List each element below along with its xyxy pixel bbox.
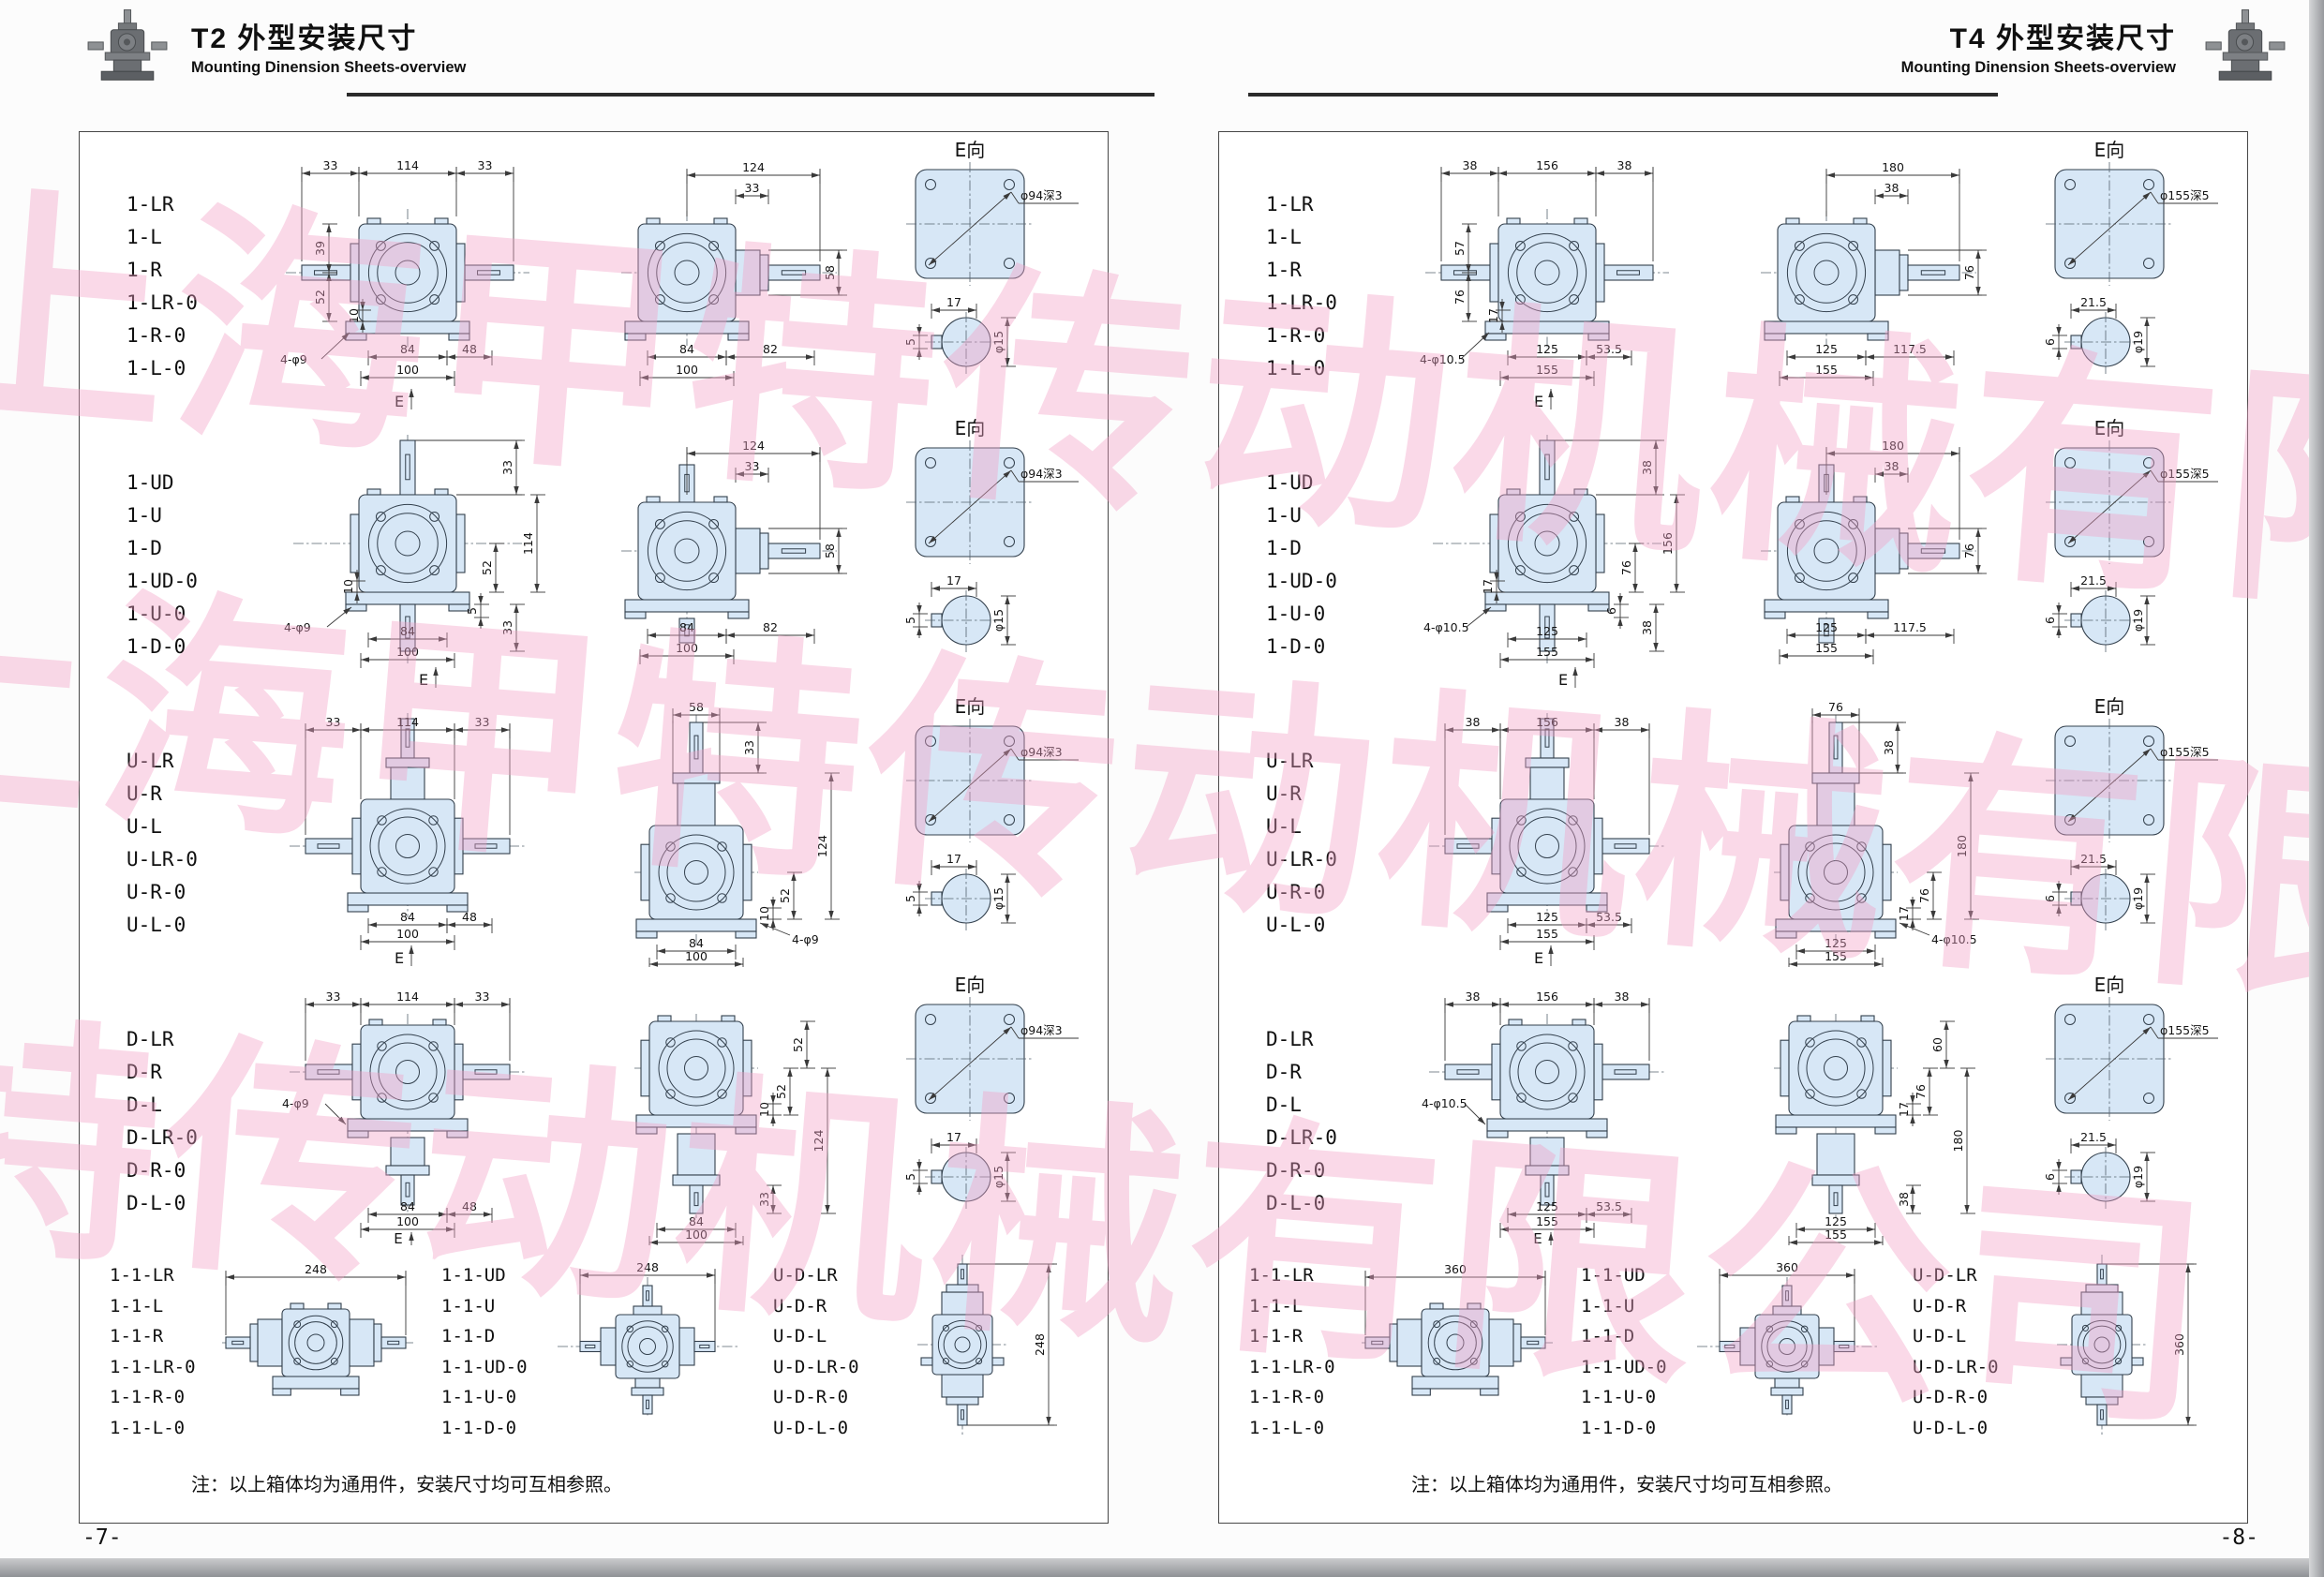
dim-text: 114	[396, 158, 419, 172]
e-view-title: E向	[955, 417, 986, 439]
dim-text: 5	[903, 1173, 917, 1181]
model-label: U-D-LR-0	[773, 1352, 882, 1383]
model-label: 1-1-L	[1249, 1291, 1358, 1322]
dim-text: 53.5	[1596, 342, 1622, 356]
dim-text: 84	[400, 1199, 415, 1213]
e-view-title: E向	[2094, 417, 2125, 439]
drawing-row: U-LRU-RU-LU-LR-0U-R-0U-L-0381563812553.5…	[1225, 689, 2229, 967]
view-side: 12433588482100	[556, 410, 865, 689]
model-label: 1-1-R	[110, 1321, 218, 1352]
model-label: D-L	[127, 1089, 246, 1122]
e-view: E向φ94深3175φ15	[865, 689, 1090, 967]
dim-text: 60	[1930, 1037, 1944, 1052]
drawing-row: 1-UD1-U1-D1-UD-01-U-01-D-033114523351084…	[85, 410, 1090, 689]
e-view: E向φ155深521.56φ19	[2004, 689, 2229, 967]
model-label: 1-U-0	[1266, 598, 1386, 631]
model-label: 1-UD	[1266, 467, 1386, 499]
dim-text: 76	[1828, 700, 1843, 714]
assembly-drawing: 248	[882, 1245, 1080, 1447]
model-label: U-D-LR-0	[1913, 1352, 2021, 1383]
e-direction-label: E	[395, 949, 404, 967]
dim-text: 125	[1536, 624, 1558, 638]
model-label: U-D-R-0	[773, 1382, 882, 1413]
model-label: 1-R	[1266, 254, 1386, 287]
dim-text: 100	[396, 363, 419, 377]
dim-text: 100	[676, 641, 698, 655]
dim-text: 48	[462, 1199, 477, 1213]
drawing-row: D-LRD-RD-LD-LR-0D-R-0D-L-033114334-φ9844…	[85, 967, 1090, 1245]
dim-text: 38	[1617, 158, 1632, 172]
dim-text: 48	[462, 910, 477, 924]
assembly-group: U-D-LRU-D-RU-D-LU-D-LR-0U-D-R-0U-D-L-036…	[1888, 1245, 2220, 1447]
model-label: D-R	[127, 1056, 246, 1089]
model-label: 1-1-LR-0	[110, 1352, 218, 1383]
model-label: U-D-R-0	[1913, 1382, 2021, 1413]
scan-edge-bottom	[0, 1558, 2324, 1577]
dim-text: φ15	[991, 1166, 1006, 1188]
dim-text: 100	[685, 949, 708, 963]
model-label: 1-1-D	[1581, 1321, 1690, 1352]
model-label: D-L-0	[1266, 1187, 1386, 1220]
dim-text: 52	[774, 1084, 788, 1099]
dim-text: 58	[689, 700, 704, 714]
view-side: 12433588482100	[556, 132, 865, 410]
dim-text: 125	[1815, 620, 1838, 634]
model-label: 1-UD-0	[127, 565, 246, 598]
dim-text: 10	[757, 906, 771, 921]
bore-note: φ94深3	[1020, 745, 1063, 759]
dim-text: 21.5	[2080, 1130, 2107, 1144]
dim-text: 6	[2043, 895, 2057, 902]
model-label: 1-D	[1266, 532, 1386, 565]
model-label: 1-L-0	[1266, 352, 1386, 385]
model-label: D-R-0	[127, 1154, 246, 1187]
dim-text: 53.5	[1596, 910, 1622, 924]
dim-text: 33	[745, 181, 760, 195]
dim-text: φ15	[991, 887, 1006, 910]
dim-text: 52	[791, 1037, 805, 1052]
model-label: 1-LR	[1266, 188, 1386, 221]
model-label-column: U-LRU-RU-LU-LR-0U-R-0U-L-0	[85, 689, 246, 967]
model-label: U-LR	[1266, 745, 1386, 778]
model-label-column: 1-UD1-U1-D1-UD-01-U-01-D-0	[85, 410, 246, 689]
dim-text: 125	[1536, 910, 1558, 924]
dim-text: 84	[689, 936, 704, 950]
dim-text: 360	[1444, 1262, 1467, 1276]
model-label: 1-1-U-0	[441, 1382, 550, 1413]
assembly-row: 1-1-LR1-1-L1-1-R1-1-LR-01-1-R-01-1-L-024…	[85, 1245, 1080, 1447]
view-front: 3815676386171251554-φ10.5E	[1386, 410, 1695, 689]
model-label-column: 1-LR1-L1-R1-LR-01-R-01-L-0	[85, 132, 246, 410]
dim-text: 38	[1640, 620, 1654, 635]
dim-text: 100	[676, 363, 698, 377]
dim-text: 38	[1466, 989, 1481, 1004]
assembly-drawing: 248	[550, 1245, 749, 1447]
page-subtitle: Mounting Dinension Sheets-overview	[191, 59, 466, 77]
dim-text: 114	[521, 532, 535, 555]
e-direction-label: E	[395, 393, 404, 410]
e-view-title: E向	[2094, 139, 2125, 161]
dim-text: 180	[1882, 439, 1904, 453]
model-label: 1-1-LR	[1249, 1260, 1358, 1291]
model-label: U-R-0	[127, 876, 246, 909]
dim-text: 6	[2043, 1173, 2057, 1181]
model-label: 1-1-U-0	[1581, 1382, 1690, 1413]
dim-text: 114	[396, 989, 419, 1004]
assembly-group: 1-1-LR1-1-L1-1-R1-1-LR-01-1-R-01-1-L-036…	[1225, 1245, 1557, 1447]
dim-text: 39	[313, 241, 327, 256]
gearbox-photo-icon	[82, 7, 172, 92]
view-front: 33114338448100E	[246, 689, 556, 967]
assembly-row: 1-1-LR1-1-L1-1-R1-1-LR-01-1-R-01-1-L-036…	[1225, 1245, 2220, 1447]
model-label: U-L-0	[127, 909, 246, 942]
model-label: U-L-0	[1266, 909, 1386, 942]
dim-text: 82	[763, 342, 778, 356]
dim-text: 82	[763, 620, 778, 634]
hole-note: 4-φ9	[282, 1096, 309, 1110]
e-direction-label: E	[1558, 671, 1568, 689]
footnote: 注：以上箱体均为通用件，安装尺寸均可互相参照。	[191, 1469, 622, 1496]
dim-text: 10	[347, 308, 361, 323]
dim-text: 84	[679, 620, 694, 634]
model-label: 1-1-L-0	[1249, 1413, 1358, 1444]
model-label: U-LR-0	[127, 843, 246, 876]
e-view: E向φ155深521.56φ19	[2004, 410, 2229, 689]
model-label: 1-1-D	[441, 1321, 550, 1352]
model-label-column: 1-1-UD1-1-U1-1-D1-1-UD-01-1-U-01-1-D-0	[1557, 1245, 1690, 1447]
dim-text: 125	[1536, 342, 1558, 356]
view-side: 60177618038125155	[1695, 967, 2004, 1245]
dim-text: 5	[465, 607, 479, 615]
hole-note: 4-φ10.5	[1931, 932, 1977, 946]
dim-text: 155	[1825, 949, 1847, 963]
dim-text: φ19	[2131, 609, 2145, 632]
dim-text: 17	[1897, 1102, 1911, 1117]
model-label-column: U-LRU-RU-LU-LR-0U-R-0U-L-0	[1225, 689, 1386, 967]
dim-text: 38	[1615, 989, 1630, 1004]
dim-text: 21.5	[2080, 852, 2107, 866]
drawing-row: U-LRU-RU-LU-LR-0U-R-0U-L-033114338448100…	[85, 689, 1090, 967]
dim-text: φ19	[2131, 1166, 2145, 1188]
model-label: U-D-LR	[1913, 1260, 2021, 1291]
model-label: 1-L-0	[127, 352, 246, 385]
bore-note: φ155深5	[2160, 467, 2210, 481]
dim-text: 76	[1619, 560, 1633, 575]
view-front: 381563857761712553.51554-φ10.5E	[1386, 132, 1695, 410]
model-label: 1-1-R-0	[1249, 1382, 1358, 1413]
dim-text: 117.5	[1893, 620, 1927, 634]
view-front: 38156384-φ10.512553.5155E	[1386, 967, 1695, 1245]
dim-text: 156	[1536, 715, 1558, 729]
dim-text: 6	[2043, 617, 2057, 624]
dim-text: 17	[1897, 906, 1911, 921]
dim-text: 57	[1452, 241, 1467, 256]
model-label: 1-R	[127, 254, 246, 287]
model-label: 1-L	[1266, 221, 1386, 254]
dim-text: 360	[2172, 1333, 2186, 1356]
dim-text: 100	[396, 1214, 419, 1228]
view-side: 763818017764-φ10.5125155	[1695, 689, 2004, 967]
model-label: 1-1-LR-0	[1249, 1352, 1358, 1383]
bore-note: φ155深5	[2160, 745, 2210, 759]
model-label: 1-1-U	[1581, 1291, 1690, 1322]
dim-text: 100	[396, 927, 419, 941]
dim-text: 33	[475, 989, 490, 1004]
model-label: U-L	[127, 811, 246, 843]
model-label: 1-1-L	[110, 1291, 218, 1322]
dim-text: 17	[1486, 308, 1500, 323]
model-label: D-LR	[1266, 1023, 1386, 1056]
dimension-sheet: 1-LR1-L1-R1-LR-01-R-01-L-033114333952108…	[79, 131, 1109, 1524]
dim-text: 10	[757, 1102, 771, 1117]
dim-text: 76	[1962, 265, 1976, 280]
dim-text: 48	[462, 342, 477, 356]
dim-text: 117.5	[1893, 342, 1927, 356]
model-label: 1-U-0	[127, 598, 246, 631]
model-label: 1-LR-0	[127, 287, 246, 320]
view-front: 331143339521084481004-φ9E	[246, 132, 556, 410]
model-label-column: 1-LR1-L1-R1-LR-01-R-01-L-0	[1225, 132, 1386, 410]
dim-text: 100	[685, 1227, 708, 1242]
bore-note: φ155深5	[2160, 1023, 2210, 1037]
view-front: 331145233510841004-φ9E	[246, 410, 556, 689]
model-label: 1-LR-0	[1266, 287, 1386, 320]
page-right: T4 外型安装尺寸 Mounting Dinension Sheets-over…	[1188, 0, 2313, 1555]
model-label: D-R	[1266, 1056, 1386, 1089]
model-label: 1-UD	[127, 467, 246, 499]
dim-text: φ19	[2131, 887, 2145, 910]
dim-text: 38	[1885, 459, 1899, 473]
bore-note: φ155深5	[2160, 188, 2210, 202]
dim-text: 38	[1615, 715, 1630, 729]
model-label: D-LR	[127, 1023, 246, 1056]
page-number: -8-	[2219, 1525, 2258, 1550]
dim-text: 17	[1481, 579, 1495, 594]
dim-text: 125	[1825, 1214, 1847, 1228]
gearbox-photo-icon	[2200, 7, 2290, 92]
assembly-group: 1-1-LR1-1-L1-1-R1-1-LR-01-1-R-01-1-L-024…	[85, 1245, 417, 1447]
model-label-column: D-LRD-RD-LD-LR-0D-R-0D-L-0	[85, 967, 246, 1245]
dim-text: 124	[742, 439, 765, 453]
dim-text: 5	[903, 895, 917, 902]
page-title: T2 外型安装尺寸	[191, 15, 466, 56]
model-label: 1-R-0	[1266, 320, 1386, 352]
dim-text: 33	[745, 459, 760, 473]
scan-edge-right	[2309, 0, 2324, 1577]
model-label-column: U-D-LRU-D-RU-D-LU-D-LR-0U-D-R-0U-D-L-0	[749, 1245, 882, 1447]
dim-text: 33	[478, 158, 493, 172]
dim-text: 33	[500, 620, 514, 635]
view-side: 1803876125117.5155	[1695, 410, 2004, 689]
bore-note: φ94深3	[1020, 467, 1063, 481]
page-header: T2 外型安装尺寸 Mounting Dinension Sheets-over…	[191, 15, 466, 77]
hole-note: 4-φ10.5	[1423, 620, 1469, 634]
dim-text: 124	[812, 1130, 826, 1153]
e-view: E向φ155深521.56φ19	[2004, 967, 2229, 1245]
model-label-column: 1-1-LR1-1-L1-1-R1-1-LR-01-1-R-01-1-L-0	[85, 1245, 218, 1447]
dim-text: 6	[2043, 338, 2057, 346]
dim-text: 76	[1917, 888, 1931, 903]
dim-text: 21.5	[2080, 295, 2107, 309]
dim-text: 76	[1962, 543, 1976, 558]
dim-text: 21.5	[2080, 573, 2107, 588]
model-label: D-L	[1266, 1089, 1386, 1122]
model-label: U-R-0	[1266, 876, 1386, 909]
model-label: 1-1-UD-0	[441, 1352, 550, 1383]
model-label: U-LR-0	[1266, 843, 1386, 876]
dim-text: 58	[823, 265, 837, 280]
hole-note: 4-φ10.5	[1420, 352, 1466, 366]
dim-text: 53.5	[1596, 1199, 1622, 1213]
model-label: D-LR-0	[127, 1122, 246, 1154]
page-subtitle: Mounting Dinension Sheets-overview	[1901, 59, 2176, 77]
view-front: 381563812553.5155E	[1386, 689, 1695, 967]
e-view-title: E向	[955, 974, 986, 996]
dim-text: 180	[1882, 160, 1904, 174]
dim-text: 38	[1882, 740, 1896, 755]
dim-text: 10	[341, 579, 355, 594]
dim-text: 155	[1536, 927, 1558, 941]
e-view-title: E向	[955, 695, 986, 718]
dim-text: 155	[1815, 363, 1838, 377]
dim-text: 360	[1776, 1260, 1798, 1274]
dim-text: 38	[1897, 1192, 1911, 1207]
model-label: 1-U	[1266, 499, 1386, 532]
dim-text: 155	[1536, 1214, 1558, 1228]
dim-text: 125	[1815, 342, 1838, 356]
dim-text: 38	[1885, 181, 1899, 195]
model-label: 1-LR	[127, 188, 246, 221]
model-label: 1-U	[127, 499, 246, 532]
dim-text: 180	[1951, 1130, 1965, 1153]
dim-text: 17	[946, 573, 961, 588]
view-side: 1803876125117.5155	[1695, 132, 2004, 410]
e-direction-label: E	[419, 671, 428, 689]
dim-text: 84	[400, 342, 415, 356]
dim-text: 33	[757, 1192, 771, 1207]
e-view: E向φ94深3175φ15	[865, 967, 1090, 1245]
model-label: 1-D	[127, 532, 246, 565]
dim-text: 52	[778, 888, 792, 903]
model-label: 1-1-R-0	[110, 1382, 218, 1413]
e-direction-label: E	[394, 1230, 402, 1245]
dim-text: 33	[500, 460, 514, 475]
bore-note: φ94深3	[1020, 1023, 1063, 1037]
model-label: 1-1-UD	[441, 1260, 550, 1291]
e-view: E向φ155深521.56φ19	[2004, 132, 2229, 410]
assembly-drawing: 360	[1358, 1245, 1557, 1447]
model-label: U-D-R	[1913, 1291, 2021, 1322]
dim-text: φ15	[991, 331, 1006, 353]
model-label: U-L	[1266, 811, 1386, 843]
assembly-group: 1-1-UD1-1-U1-1-D1-1-UD-01-1-U-01-1-D-036…	[1557, 1245, 1888, 1447]
dim-text: 155	[1536, 363, 1558, 377]
model-label: 1-1-D-0	[441, 1413, 550, 1444]
page-number: -7-	[82, 1525, 122, 1550]
dim-text: 84	[400, 624, 415, 638]
dim-text: 33	[326, 715, 341, 729]
model-label: U-D-L-0	[1913, 1413, 2021, 1444]
model-label-column: D-LRD-RD-LD-LR-0D-R-0D-L-0	[1225, 967, 1386, 1245]
dim-text: 5	[903, 338, 917, 346]
drawing-row: 1-UD1-U1-D1-UD-01-U-01-D-038156763861712…	[1225, 410, 2229, 689]
catalog-spread: 上海甲特传动机械有限公司 上海甲特传动机械有限公司 上海甲特传动机械有限公司 T…	[0, 0, 2324, 1577]
model-label: U-D-L	[773, 1321, 882, 1352]
dim-text: 156	[1536, 158, 1558, 172]
dim-text: 84	[689, 1214, 704, 1228]
model-label: 1-1-UD-0	[1581, 1352, 1690, 1383]
dim-text: 52	[480, 560, 494, 575]
dim-text: 180	[1955, 835, 1969, 857]
page-title: T4 外型安装尺寸	[1901, 15, 2176, 56]
assembly-drawing: 360	[2021, 1245, 2220, 1447]
drawing-row: 1-LR1-L1-R1-LR-01-R-01-L-038156385776171…	[1225, 132, 2229, 410]
assembly-drawing: 360	[1690, 1245, 1888, 1447]
dim-text: 156	[1661, 532, 1675, 555]
dim-text: 84	[400, 910, 415, 924]
model-label: 1-1-UD	[1581, 1260, 1690, 1291]
model-label: 1-1-LR	[110, 1260, 218, 1291]
header-rule	[347, 93, 1155, 97]
e-direction-label: E	[1534, 393, 1543, 410]
bore-note: φ94深3	[1020, 188, 1063, 202]
model-label-column: 1-1-UD1-1-U1-1-D1-1-UD-01-1-U-01-1-D-0	[417, 1245, 550, 1447]
model-label: 1-D-0	[127, 631, 246, 663]
model-label: 1-D-0	[1266, 631, 1386, 663]
dim-text: 33	[323, 158, 338, 172]
assembly-group: 1-1-UD1-1-U1-1-D1-1-UD-01-1-U-01-1-D-024…	[417, 1245, 749, 1447]
dim-text: 5	[903, 617, 917, 624]
dim-text: 124	[742, 160, 765, 174]
model-label: 1-L	[127, 221, 246, 254]
dim-text: 76	[1452, 290, 1467, 305]
e-direction-label: E	[1534, 949, 1543, 967]
dim-text: 155	[1825, 1227, 1847, 1242]
model-label: U-D-L-0	[773, 1413, 882, 1444]
page-left: T2 外型安装尺寸 Mounting Dinension Sheets-over…	[49, 0, 1173, 1555]
model-label: U-LR	[127, 745, 246, 778]
dim-text: 155	[1536, 645, 1558, 659]
model-label: D-LR-0	[1266, 1122, 1386, 1154]
header-rule	[1248, 93, 1998, 97]
dim-text: 38	[1463, 158, 1478, 172]
dim-text: 125	[1825, 936, 1847, 950]
dim-text: φ15	[991, 609, 1006, 632]
view-side: 583312410524-φ984100	[556, 689, 865, 967]
model-label: 1-1-D-0	[1581, 1413, 1690, 1444]
e-view-title: E向	[955, 139, 986, 161]
dim-text: 52	[313, 290, 327, 305]
model-label: D-L-0	[127, 1187, 246, 1220]
dim-text: 17	[946, 295, 961, 309]
dim-text: 17	[946, 1130, 961, 1144]
model-label-column: U-D-LRU-D-RU-D-LU-D-LR-0U-D-R-0U-D-L-0	[1888, 1245, 2021, 1447]
hole-note: 4-φ9	[792, 932, 819, 946]
assembly-drawing: 248	[218, 1245, 417, 1447]
view-side: 5210521243384100	[556, 967, 865, 1245]
dim-text: 38	[1466, 715, 1481, 729]
dim-text: 84	[679, 342, 694, 356]
dim-text: 100	[396, 645, 419, 659]
model-label: 1-1-L-0	[110, 1413, 218, 1444]
dim-text: 248	[1033, 1333, 1047, 1356]
drawing-row: 1-LR1-L1-R1-LR-01-R-01-L-033114333952108…	[85, 132, 1090, 410]
model-label: 1-UD-0	[1266, 565, 1386, 598]
model-label: 1-1-R	[1249, 1321, 1358, 1352]
model-label: U-R	[1266, 778, 1386, 811]
dim-text: φ19	[2131, 331, 2145, 353]
dim-text: 156	[1536, 989, 1558, 1004]
